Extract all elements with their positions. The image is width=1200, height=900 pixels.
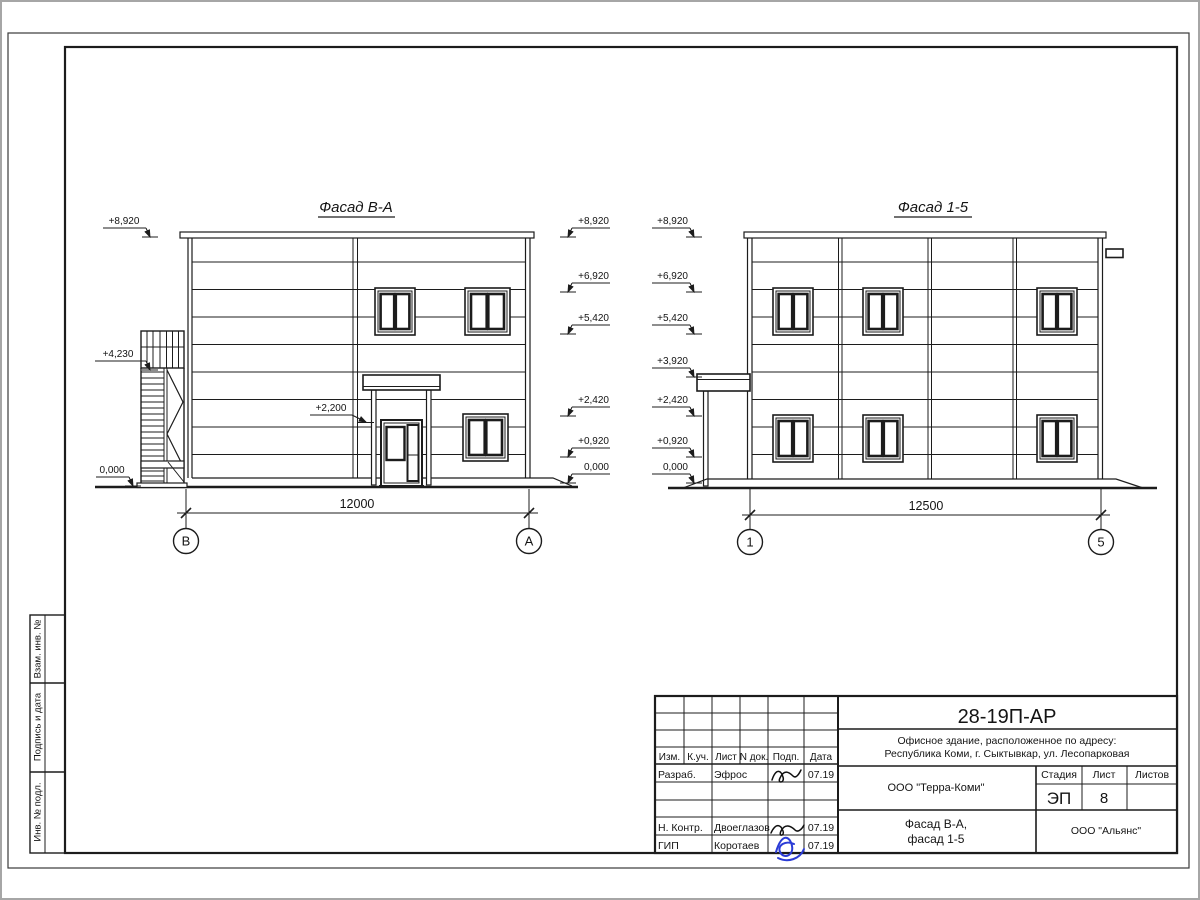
- elevation-value: +3,920: [657, 356, 688, 367]
- sheet-label: Лист: [1093, 769, 1116, 781]
- elevation-mark: +6,920: [560, 271, 610, 292]
- stage-label: Стадия: [1041, 769, 1077, 781]
- col-data: Дата: [810, 752, 833, 763]
- elevation-value: +6,920: [657, 271, 688, 282]
- facade-ba: Фасад В-А: [95, 199, 610, 554]
- elevation-mark: +8,920: [103, 216, 158, 237]
- sheet-value: 8: [1100, 790, 1108, 807]
- elevation-mark: +5,420: [652, 313, 702, 334]
- dimension-value: 12500: [909, 499, 944, 513]
- elevation-value: +8,920: [109, 216, 140, 227]
- door-elevation-mark: +2,200: [310, 403, 374, 423]
- title-block: Изм. К.уч. Лист N док. Подп. Дата Разраб…: [655, 696, 1177, 860]
- elevation-mark: +5,420: [560, 313, 610, 334]
- role-label: Н. Контр.: [658, 822, 703, 834]
- person-name: Коротаев: [714, 840, 760, 852]
- facade-ba-dimension: 12000 В А: [174, 489, 542, 554]
- elevation-mark: 0,000: [560, 462, 610, 483]
- facade-15: Фасад 1-5: [652, 199, 1157, 555]
- stage-value: ЭП: [1047, 789, 1071, 808]
- roof-drain: [1106, 249, 1123, 258]
- col-ndok: N док.: [740, 752, 769, 763]
- col-kuch: К.уч.: [687, 752, 709, 763]
- col-list: Лист: [715, 752, 737, 763]
- elevation-value: +6,920: [578, 271, 609, 282]
- facade-ba-title: Фасад В-А: [319, 199, 393, 216]
- external-stair: [137, 331, 187, 488]
- side-porch: [697, 374, 750, 486]
- axis-label: 5: [1097, 535, 1104, 550]
- elevation-value: +0,920: [657, 436, 688, 447]
- axis-label: 1: [746, 535, 753, 550]
- elevation-value: +5,420: [578, 313, 609, 324]
- drawing-subtitle-line2: фасад 1-5: [908, 832, 965, 846]
- window: [1037, 288, 1077, 335]
- elevation-value: +0,920: [578, 436, 609, 447]
- elevation-value: +8,920: [578, 216, 609, 227]
- drawing-subtitle-line1: Фасад В-А,: [905, 817, 967, 831]
- client-name: ООО "Терра-Коми": [887, 782, 984, 794]
- sheets-label: Листов: [1135, 769, 1170, 781]
- dimension-value: 12000: [340, 497, 375, 511]
- stamp-label-vzam: Взам. инв. №: [33, 620, 44, 679]
- elevation-mark: 0,000: [652, 462, 702, 483]
- window: [773, 288, 813, 335]
- elevation-mark: +0,920: [652, 436, 702, 457]
- elevation-value: +2,420: [578, 395, 609, 406]
- drawing-sheet: Взам. инв. № Подпись и дата Инв. № подл.…: [0, 0, 1200, 900]
- window: [863, 415, 903, 462]
- contractor-name: ООО "Альянс": [1071, 825, 1141, 837]
- row-ncontrol: Н. Контр. Двоеглазов 07.19: [658, 822, 834, 835]
- person-name: Двоеглазов: [714, 822, 770, 834]
- elevation-mark: +3,920: [652, 356, 702, 377]
- facade-15-dimension: 12500 1 5: [738, 489, 1114, 555]
- project-address-line2: Республика Коми, г. Сыктывкар, ул. Лесоп…: [885, 748, 1130, 760]
- elevation-mark: +6,920: [652, 271, 702, 292]
- elevation-value: +2,200: [316, 403, 347, 414]
- stair-treads: [141, 372, 164, 456]
- elevation-mark: +2,420: [652, 395, 702, 416]
- date-value: 07.19: [808, 769, 834, 781]
- axis-label: А: [525, 534, 534, 549]
- elevation-mark: +8,920: [652, 216, 702, 237]
- date-value: 07.19: [808, 840, 834, 852]
- window: [375, 288, 415, 335]
- elevation-value: +4,230: [103, 349, 134, 360]
- elevation-value: +8,920: [657, 216, 688, 227]
- facade-15-left-elevations: +8,920 +6,920 +5,420 +3,920: [652, 216, 702, 483]
- elevation-value: 0,000: [663, 462, 688, 473]
- facade-15-title: Фасад 1-5: [898, 199, 969, 216]
- margin-stamp-boxes: Взам. инв. № Подпись и дата Инв. № подл.: [30, 615, 65, 853]
- elevation-value: 0,000: [99, 465, 124, 476]
- person-name: Эфрос: [714, 769, 747, 781]
- elevation-mark: +0,920: [560, 436, 610, 457]
- document-code: 28-19П-АР: [958, 706, 1057, 728]
- elevation-mark: +2,420: [560, 395, 610, 416]
- window: [863, 288, 903, 335]
- entrance-door: [379, 420, 424, 486]
- window: [773, 415, 813, 462]
- axis-label: В: [182, 534, 191, 549]
- window: [463, 414, 508, 461]
- elevation-value: +2,420: [657, 395, 688, 406]
- elevation-value: 0,000: [584, 462, 609, 473]
- stamp-label-podpis: Подпись и дата: [33, 692, 44, 761]
- date-value: 07.19: [808, 822, 834, 834]
- window: [1037, 415, 1077, 462]
- row-developed: Разраб. Эфрос 07.19: [658, 769, 834, 782]
- elevation-mark: +8,920: [560, 216, 610, 237]
- role-label: ГИП: [658, 840, 679, 852]
- elevation-mark: 0,000: [96, 465, 141, 486]
- window: [465, 288, 510, 335]
- col-podp: Подп.: [773, 752, 800, 763]
- elevation-value: +5,420: [657, 313, 688, 324]
- stamp-label-inv: Инв. № подл.: [33, 782, 44, 841]
- col-izm: Изм.: [659, 752, 680, 763]
- role-label: Разраб.: [658, 769, 696, 781]
- facade-ba-right-elevations: +8,920 +6,920 +5,420 +2,420: [560, 216, 610, 483]
- project-address-line1: Офисное здание, расположенное по адресу:: [898, 735, 1117, 747]
